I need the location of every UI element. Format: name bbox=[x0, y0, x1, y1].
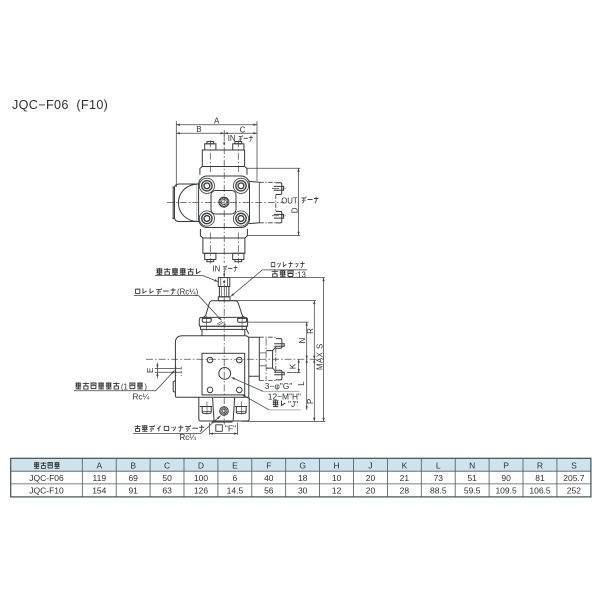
svg-text:"J": "J" bbox=[288, 399, 298, 409]
svg-text:B: B bbox=[130, 460, 136, 470]
svg-text:106.5: 106.5 bbox=[529, 486, 551, 496]
svg-text:12: 12 bbox=[332, 486, 342, 496]
svg-text:(1: (1 bbox=[121, 382, 128, 391]
svg-text:69: 69 bbox=[128, 473, 138, 483]
svg-text:18: 18 bbox=[298, 473, 308, 483]
svg-text:Rc¼: Rc¼ bbox=[180, 433, 197, 442]
svg-text:88.5: 88.5 bbox=[430, 486, 447, 496]
svg-text:N: N bbox=[469, 460, 475, 470]
svg-text:51: 51 bbox=[467, 473, 477, 483]
svg-text:91: 91 bbox=[128, 486, 138, 496]
svg-text:L: L bbox=[436, 460, 441, 470]
svg-text:H: H bbox=[334, 460, 340, 470]
svg-text:252: 252 bbox=[567, 486, 581, 496]
svg-text:90: 90 bbox=[501, 473, 511, 483]
svg-text:59.5: 59.5 bbox=[464, 486, 481, 496]
svg-text:): ) bbox=[144, 382, 147, 391]
svg-text:J: J bbox=[368, 460, 372, 470]
svg-text:28: 28 bbox=[400, 486, 410, 496]
svg-text:E: E bbox=[232, 460, 238, 470]
svg-text:50: 50 bbox=[162, 473, 172, 483]
svg-text:154: 154 bbox=[92, 486, 106, 496]
svg-text:109.5: 109.5 bbox=[495, 486, 517, 496]
svg-text:R: R bbox=[306, 328, 315, 334]
svg-text:63: 63 bbox=[162, 486, 172, 496]
svg-text:"F": "F" bbox=[225, 423, 236, 433]
svg-text:100: 100 bbox=[194, 473, 208, 483]
svg-text:126: 126 bbox=[194, 486, 208, 496]
svg-text:21: 21 bbox=[400, 473, 410, 483]
svg-text:20: 20 bbox=[366, 473, 376, 483]
svg-text:JQC-F06: JQC-F06 bbox=[29, 473, 64, 483]
svg-text:(Rc¼): (Rc¼) bbox=[177, 287, 199, 296]
svg-text:L: L bbox=[297, 381, 306, 386]
svg-text:D: D bbox=[198, 460, 204, 470]
svg-text:C: C bbox=[240, 125, 246, 134]
svg-text:IN: IN bbox=[228, 134, 236, 143]
svg-text::13: :13 bbox=[295, 270, 306, 279]
svg-text:A: A bbox=[214, 116, 220, 125]
svg-text:OUT: OUT bbox=[281, 197, 298, 206]
svg-text:JQC-F10: JQC-F10 bbox=[29, 486, 64, 496]
svg-text:K: K bbox=[289, 363, 298, 369]
svg-text:P: P bbox=[306, 399, 315, 404]
svg-text:119: 119 bbox=[93, 473, 107, 483]
svg-text:56: 56 bbox=[264, 486, 274, 496]
svg-text:MAX S: MAX S bbox=[316, 343, 325, 370]
svg-text:JQC−F06 (F10): JQC−F06 (F10) bbox=[12, 98, 108, 112]
svg-text:P: P bbox=[503, 460, 509, 470]
svg-text:205.7: 205.7 bbox=[563, 473, 585, 483]
svg-text:IN: IN bbox=[213, 264, 221, 273]
svg-text:3−φ"G": 3−φ"G" bbox=[265, 381, 292, 391]
svg-text:20: 20 bbox=[366, 486, 376, 496]
svg-text:10: 10 bbox=[332, 473, 342, 483]
svg-text:N: N bbox=[298, 338, 307, 344]
svg-text:K: K bbox=[402, 460, 408, 470]
svg-text:D: D bbox=[290, 207, 299, 213]
svg-text:G: G bbox=[299, 460, 306, 470]
svg-text:73: 73 bbox=[434, 473, 444, 483]
svg-text:F: F bbox=[266, 460, 271, 470]
svg-text:6: 6 bbox=[233, 473, 238, 483]
svg-text:B: B bbox=[196, 125, 201, 134]
svg-text:C: C bbox=[164, 460, 170, 470]
svg-text:Rc¼: Rc¼ bbox=[133, 393, 150, 402]
svg-text:R: R bbox=[537, 460, 543, 470]
svg-text:14.5: 14.5 bbox=[227, 486, 244, 496]
svg-text:30: 30 bbox=[298, 486, 308, 496]
svg-text:A: A bbox=[96, 460, 102, 470]
svg-text:81: 81 bbox=[535, 473, 545, 483]
svg-text:E: E bbox=[146, 368, 155, 373]
svg-text:S: S bbox=[571, 460, 577, 470]
svg-text:40: 40 bbox=[264, 473, 274, 483]
